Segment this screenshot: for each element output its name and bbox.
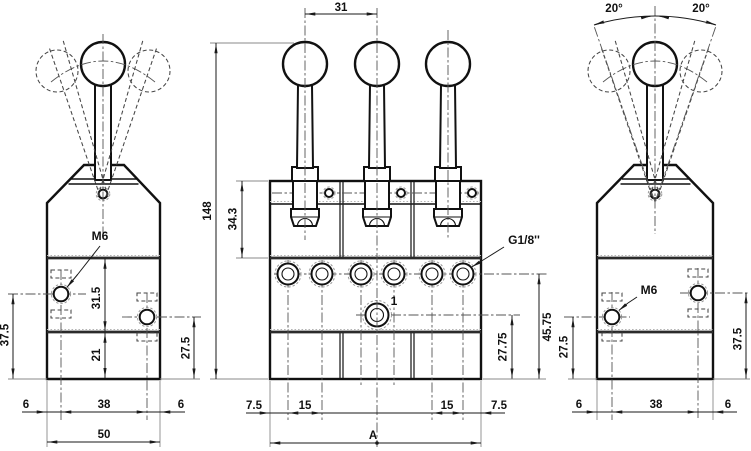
svg-text:38: 38 [650,399,663,411]
dim-left-27-5: 27.5 [160,317,200,379]
svg-text:20°: 20° [692,3,710,15]
svg-text:37.5: 37.5 [733,327,745,350]
svg-text:31.5: 31.5 [91,286,103,309]
svg-text:15: 15 [299,400,312,412]
dim-cap-section: 34.3 [228,181,268,258]
svg-text:6: 6 [725,399,731,411]
dim-port1-height: 27.75 [498,315,512,379]
dim-overall-width-A: A [270,430,481,445]
svg-text:38: 38 [98,399,111,411]
svg-text:148: 148 [202,201,214,221]
svg-text:20°: 20° [605,3,623,15]
svg-text:6: 6 [576,399,582,411]
svg-text:50: 50 [98,429,111,441]
drawing-canvas: M6 31.5 21 37.5 2 [0,0,751,451]
left-side-view: M6 31.5 21 37.5 2 [0,34,201,447]
svg-text:27.5: 27.5 [559,335,571,358]
svg-text:15: 15 [441,400,454,412]
left-m6-label: M6 [92,229,109,243]
front-view: 1 G1/8'' 31 148 [202,2,554,447]
svg-text:34.3: 34.3 [228,208,240,230]
right-m6-label: M6 [641,283,658,297]
svg-text:27.75: 27.75 [498,332,510,361]
svg-text:7.5: 7.5 [491,400,508,412]
dim-lever-spacing: 31 [305,2,377,14]
dim-right-27-5: 27.5 [559,317,597,379]
svg-text:7.5: 7.5 [246,400,263,412]
svg-text:6: 6 [23,399,29,411]
svg-text:6: 6 [178,399,184,411]
g18-label: G1/8'' [508,233,540,247]
svg-text:45.75: 45.75 [542,312,554,341]
svg-text:37.5: 37.5 [0,323,12,346]
svg-text:A: A [369,430,377,442]
dim-right-37-5: 37.5 [713,293,750,379]
right-side-view: 20° 20° M6 27.5 37.5 [559,3,750,420]
dim-port-row-height: 45.75 [483,274,554,379]
svg-text:27.5: 27.5 [181,336,193,359]
svg-text:31: 31 [335,2,348,14]
dim-left-37-5: 37.5 [0,294,47,379]
svg-text:21: 21 [91,348,103,361]
dim-left-bottom: 6 38 6 50 [22,381,185,447]
port-1-label: 1 [391,294,398,308]
dim-right-bottom: 6 38 6 [572,381,737,420]
valve-dimension-drawing: M6 31.5 21 37.5 2 [0,0,751,451]
